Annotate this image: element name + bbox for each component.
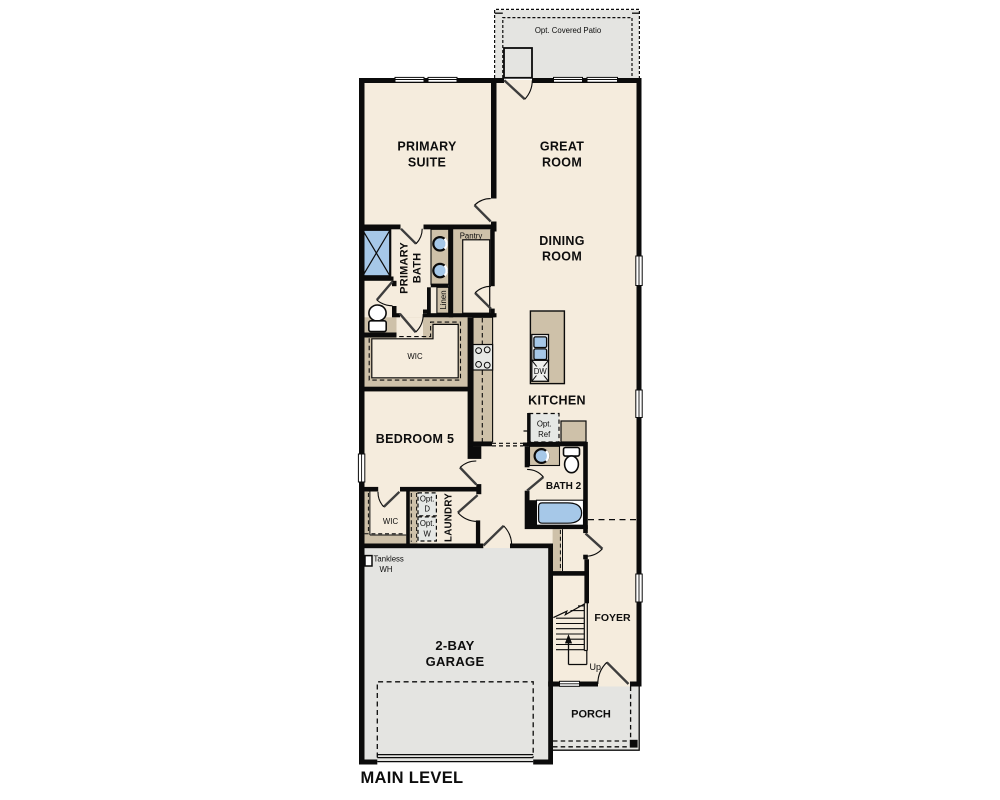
svg-text:Ref: Ref	[538, 430, 551, 439]
svg-text:WH: WH	[380, 565, 393, 574]
svg-text:BEDROOM 5: BEDROOM 5	[376, 432, 454, 446]
svg-text:ROOM: ROOM	[542, 250, 582, 264]
svg-text:KITCHEN: KITCHEN	[528, 394, 586, 408]
svg-text:MAIN LEVEL: MAIN LEVEL	[361, 769, 464, 787]
svg-text:PRIMARY: PRIMARY	[399, 242, 411, 294]
svg-text:DW: DW	[534, 367, 548, 376]
svg-text:BATH: BATH	[412, 253, 424, 284]
svg-text:BATH 2: BATH 2	[546, 481, 582, 492]
svg-text:Up: Up	[590, 662, 602, 672]
svg-text:LAUNDRY: LAUNDRY	[444, 493, 455, 542]
svg-text:Opt. Covered Patio: Opt. Covered Patio	[535, 26, 602, 35]
svg-text:GARAGE: GARAGE	[426, 654, 485, 669]
svg-text:GREAT: GREAT	[540, 140, 584, 154]
svg-text:DINING: DINING	[539, 234, 585, 248]
svg-text:FOYER: FOYER	[594, 612, 631, 624]
svg-text:D: D	[424, 505, 430, 514]
svg-text:PRIMARY: PRIMARY	[397, 140, 457, 154]
svg-text:Opt.: Opt.	[420, 495, 435, 504]
svg-text:Linen: Linen	[439, 290, 448, 309]
svg-text:Pantry: Pantry	[460, 231, 483, 240]
svg-text:Tankless: Tankless	[374, 555, 404, 564]
svg-text:ROOM: ROOM	[542, 156, 582, 170]
svg-text:Opt.: Opt.	[537, 420, 552, 429]
svg-text:PORCH: PORCH	[571, 709, 611, 721]
svg-text:WIC: WIC	[407, 352, 423, 361]
svg-text:W: W	[424, 530, 432, 539]
svg-text:WIC: WIC	[383, 517, 399, 526]
svg-text:Opt.: Opt.	[420, 519, 435, 528]
svg-text:2-BAY: 2-BAY	[435, 638, 474, 653]
svg-text:SUITE: SUITE	[408, 156, 446, 170]
